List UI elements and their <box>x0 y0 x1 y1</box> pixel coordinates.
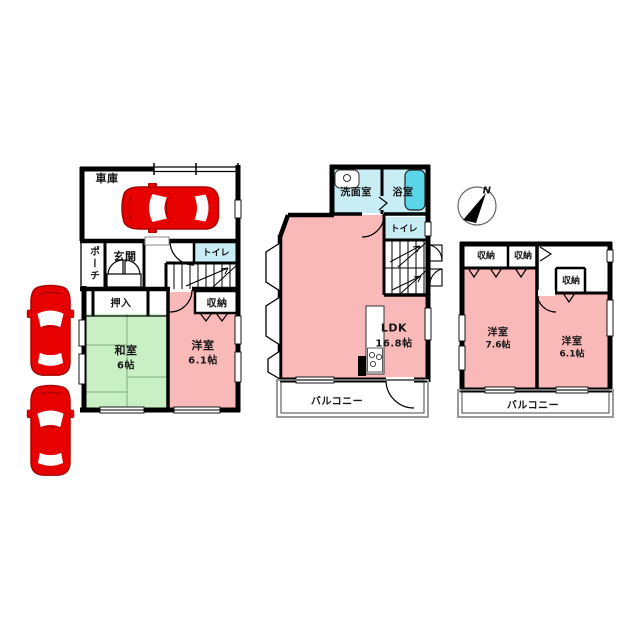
f1-stairs <box>174 263 238 289</box>
garage-step <box>145 237 169 245</box>
f2-toilet-window <box>425 222 431 236</box>
balcony-door-arc <box>386 380 414 408</box>
parking-car-1-icon <box>27 285 74 375</box>
floor3-plan <box>458 242 613 417</box>
bay-windows <box>266 243 280 379</box>
garage-label: 車庫 <box>96 170 119 186</box>
ldk-name: LDK <box>381 322 407 335</box>
f3-room2-door-gap <box>538 290 555 296</box>
f2-toilet-label: トイレ <box>390 222 417 235</box>
entrance-label: 玄関 <box>114 248 137 264</box>
f3-room2-name: 洋室 <box>562 333 583 348</box>
f3-room1-size: 7.6帖 <box>486 338 511 351</box>
porch-label: ポーチ <box>86 246 101 282</box>
floorplan-page: 車庫 ポーチ 玄関 トイレ 押入 収納 和室 6帖 洋室 6.1帖 洗面室 浴室… <box>0 0 640 640</box>
f1-door-gap <box>170 286 192 292</box>
f3-balcony-label: バルコニー <box>507 397 559 412</box>
f3-room2-size: 6.1帖 <box>560 347 585 360</box>
f1-toilet-label: トイレ <box>202 246 229 259</box>
parking-car-2-icon <box>27 385 74 475</box>
f1-youshitsu-size: 6.1帖 <box>188 352 218 367</box>
f1-toilet-door-arc <box>170 241 194 265</box>
f3-storage-b-label: 収納 <box>514 249 532 262</box>
washitsu-size: 6帖 <box>117 357 135 372</box>
f3-storage-c-label: 収納 <box>562 274 580 287</box>
stair-doors <box>430 245 442 286</box>
floorplan-svg <box>0 0 640 640</box>
f2-balcony-label: バルコニー <box>311 393 363 408</box>
f3-room1-name: 洋室 <box>488 324 509 339</box>
oshiire-label: 押入 <box>111 295 132 310</box>
f1-storage-label: 収納 <box>207 295 228 310</box>
floor2-plan <box>266 165 442 417</box>
bath-label: 浴室 <box>393 184 414 199</box>
garage-car-icon <box>122 183 219 233</box>
f2-right-window <box>425 308 431 340</box>
compass-north-label: N <box>483 186 492 197</box>
f2-stairs <box>384 240 428 295</box>
f3-storage-a-label: 収納 <box>477 249 495 262</box>
f3-fold-door <box>540 247 551 261</box>
kitchen-wall-stub <box>358 356 366 376</box>
ldk-size: 16.8帖 <box>375 335 412 350</box>
entrance-doors <box>107 260 141 287</box>
washroom-label: 洗面室 <box>340 184 372 199</box>
